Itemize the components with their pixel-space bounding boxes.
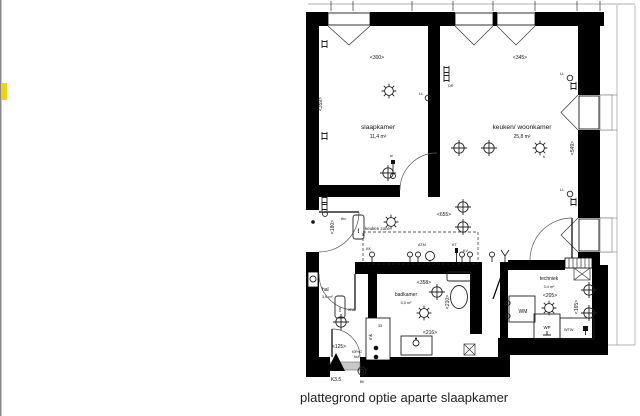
exclamation-label: ! — [339, 307, 341, 314]
kt-flag-icon — [455, 248, 458, 253]
tz-label: tz — [390, 154, 393, 158]
b-label: b — [543, 155, 545, 159]
floor-drain-cross — [464, 344, 475, 355]
meter-label-1: 60PnG — [352, 350, 362, 354]
area-label-slaapkamer: 11,4 m² — [370, 134, 387, 140]
spotlight-icon — [455, 199, 471, 215]
dim-techniek-width: <205> — [543, 293, 557, 299]
switch-y-icon — [501, 250, 509, 262]
counter-outlet-icon — [468, 252, 473, 262]
wall-light-icon — [567, 191, 573, 197]
window-glazing-icon — [561, 218, 578, 252]
meter-label-2: 6xA — [354, 355, 360, 359]
wall-light-icon — [567, 75, 573, 81]
room-label-badkamer: badkamer — [395, 292, 418, 298]
floorplan-page: keuken zone KK ATM KT KV <300> <359> sla… — [0, 0, 640, 416]
window-right-1 — [579, 96, 599, 129]
dr-label: DR — [448, 84, 454, 88]
balcony-lines — [617, 5, 635, 345]
washbasin-drain-dot — [415, 338, 417, 340]
window-sill — [600, 95, 612, 130]
exclamation-label: ! — [357, 228, 359, 235]
switch-icon — [391, 160, 395, 164]
dim-sink: <216> — [423, 330, 437, 336]
keuken-zone-outline — [363, 232, 478, 264]
window-keuken-2 — [497, 13, 535, 25]
door-stop-icon — [311, 220, 315, 224]
intercom-panel-icon — [308, 272, 318, 287]
socket-icon — [444, 74, 449, 82]
ll-label: LL — [560, 72, 564, 76]
area-label-keuken: 25,8 m² — [514, 134, 531, 140]
balcony-door-arc — [530, 218, 572, 260]
window-glazing-icon — [328, 26, 370, 45]
wp-symbol — [543, 331, 551, 335]
ceiling-light-icon — [533, 141, 548, 156]
ll-label: LL — [419, 92, 423, 96]
counter-outlet-icon — [490, 252, 495, 262]
socket-icon — [571, 198, 576, 206]
page-edge-line — [0, 0, 2, 416]
balcony-door-glass — [579, 219, 599, 251]
spotlight-icon — [451, 140, 467, 156]
room-label-techniek: techniek — [540, 276, 559, 282]
washbasin-tap-icon — [413, 340, 419, 346]
kv-label: KV — [463, 249, 469, 253]
counter-outlet-icon — [370, 252, 375, 262]
tbv-label: tbv — [341, 217, 346, 221]
ceiling-light-icon — [542, 301, 557, 316]
dim-hal-width: <125> — [332, 344, 346, 350]
counter-outlet-icon — [416, 252, 421, 262]
area-label-hal: 3,6 m² — [322, 295, 333, 299]
walls-shape — [306, 12, 608, 377]
dim-slaapkamer-width: <300> — [370, 55, 384, 61]
area-label-techniek: 3,4 m² — [544, 285, 555, 289]
dim-entry: <180> — [330, 220, 336, 234]
mk-label: mk — [368, 333, 373, 340]
yellow-highlight-tab — [2, 83, 7, 100]
dim-keuken-height: <549> — [570, 141, 576, 155]
window-glazing-icon — [497, 26, 535, 45]
floorplan-svg: keuken zone KK ATM KT KV <300> <359> sla… — [0, 0, 640, 416]
window-keuken-1 — [455, 13, 493, 25]
conduit-dot — [374, 346, 379, 351]
socket-icon — [444, 66, 449, 74]
area-label-badkamer: 5,0 m² — [401, 301, 412, 305]
caption: plattegrond optie aparte slaapkamer — [300, 390, 509, 405]
room-label-slaapkamer: slaapkamer — [361, 124, 396, 131]
room-label-hal: hal — [322, 287, 329, 293]
grid-ticks — [331, 1, 600, 11]
wtw-label: WTW — [564, 328, 574, 332]
spotlight-icon — [481, 140, 497, 156]
dim-keuken-width: <345> — [513, 55, 527, 61]
appliance-point-icon — [426, 252, 435, 261]
room-label-keuken: keuken/ woonkamer — [492, 124, 552, 131]
window-sill — [600, 218, 612, 252]
dim-techniek-height: <165> — [574, 300, 580, 314]
rn-label: 2RN — [348, 308, 356, 312]
kk-label: KK — [366, 247, 372, 251]
spotlight-icon — [429, 284, 445, 300]
socket-icon — [571, 82, 576, 90]
dim-badkamer-width: <358> — [417, 280, 431, 286]
counter-outlet-icon — [408, 252, 413, 262]
dim-slaapkamer-height: <359> — [318, 97, 324, 111]
toilet-bowl-icon — [451, 286, 468, 309]
kt-label: KT — [452, 243, 458, 247]
wm-label: WM — [519, 309, 528, 315]
atm-label: ATM — [418, 243, 426, 247]
k35-label: K3.5 — [331, 377, 342, 383]
ceiling-light-icon — [417, 306, 432, 321]
dim-wc: <210> — [445, 295, 451, 309]
dim-keuken-inner: <655> — [437, 212, 451, 218]
ceiling-light-icon — [382, 84, 397, 99]
window-glazing-icon — [455, 26, 493, 45]
socket-icon — [322, 40, 327, 48]
bk-label: BK — [360, 380, 365, 384]
ll-label: LL — [560, 188, 564, 192]
spotlight-icon — [455, 219, 471, 235]
wp-label: WP — [543, 325, 550, 330]
conduit-dot — [374, 355, 379, 360]
socket-icon — [322, 196, 327, 204]
ceiling-light-icon — [384, 215, 399, 230]
socket-icon — [322, 132, 327, 140]
counter-outlet-icon — [460, 252, 465, 262]
window-glazing-icon — [561, 95, 578, 130]
s33-label: 33 — [378, 324, 382, 328]
socket-icon — [322, 203, 327, 211]
window-slaapkamer — [328, 13, 370, 25]
shaft-cross — [574, 268, 590, 280]
wtw-symbol — [583, 326, 588, 331]
